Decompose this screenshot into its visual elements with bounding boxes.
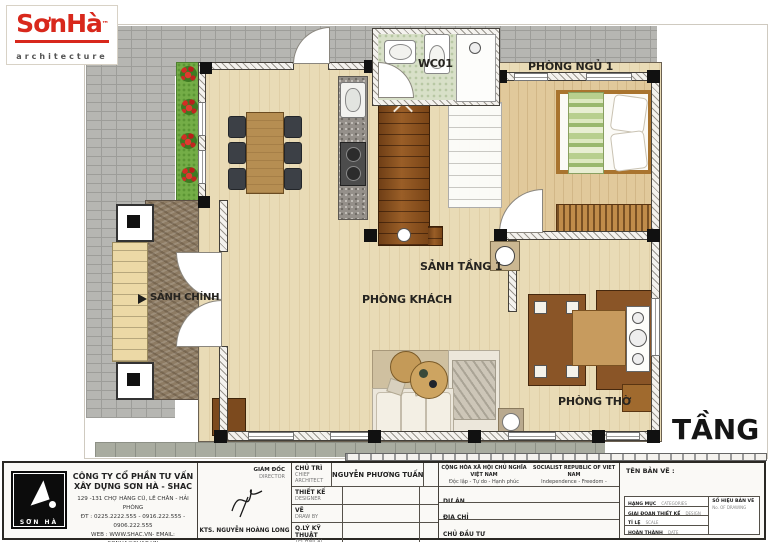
brand-logo: SơnHà™ architecture (6, 5, 118, 65)
floor-plan-page: WC01 PHÒNG NGỦ 1 SẢNH TẦNG 1 PHÒNG KHÁCH… (0, 0, 768, 542)
wall-entrance-lower (219, 346, 228, 441)
company-name-line1: CÔNG TY CỔ PHẦN TƯ VẤN (70, 472, 196, 482)
brand-name: SơnHà (16, 9, 102, 38)
flower-bush (181, 99, 198, 115)
dining-chair (284, 116, 302, 138)
info-row: ĐỊA CHỈ LOCATION (439, 503, 619, 519)
label-bedroom: PHÒNG NGỦ 1 (528, 60, 613, 73)
drawing-section: TÊN BẢN VẼ : HẠNG MỤC CATEGORIES GIAI ĐO… (620, 463, 764, 538)
director-section: GIÁM ĐỐC DIRECTOR KTS. NGUYỄN HOÀNG LONG (198, 463, 292, 538)
company-phone: ĐT : 0225.2222.555 - 0916.222.555 - 0906… (70, 513, 196, 531)
republic-section: CỘNG HÒA XÃ HỘI CHỦ NGHĨA VIỆT NAM Độc l… (439, 463, 620, 538)
kitchen-stove (340, 142, 366, 186)
drawing-meta-row: HẠNG MỤC CATEGORIES (625, 497, 708, 507)
sofa-blanket (452, 360, 496, 420)
column (198, 196, 210, 208)
role-label: THIẾT KẾ (295, 489, 339, 496)
company-section: SƠN HÀ CÔNG TY CỔ PHẦN TƯ VẤN XÂY DỰNG S… (4, 463, 198, 538)
drawing-meta-row: HOÀN THÀNH DATE (625, 526, 708, 535)
window (508, 432, 556, 440)
drawing-meta-row: TỈ LỆ SCALE (625, 516, 708, 526)
drawing-meta-row: GIAI ĐOẠN THIẾT KẾ DESIGN PHASE (625, 507, 708, 517)
column (200, 62, 212, 74)
pier-core (127, 373, 140, 386)
porch-pier (116, 362, 154, 400)
burner (346, 166, 361, 181)
burner (346, 147, 361, 162)
window (330, 432, 370, 440)
console-dish (629, 329, 647, 347)
director-label: GIÁM ĐỐC DIRECTOR (253, 467, 285, 480)
role-label: CHỦ TRÌ (295, 465, 328, 472)
dining-table (246, 112, 284, 194)
floor-title: TẦNG 1 (672, 413, 768, 446)
bed-pillow (610, 94, 649, 134)
company-address: 129 -131 CHỢ HÀNG CŨ, LÊ CHÂN - HẢI PHÒN… (70, 495, 196, 513)
scale-bar (345, 453, 767, 461)
console-dish (632, 312, 644, 324)
wall-top-left (198, 62, 294, 70)
drawing-meta-grid: HẠNG MỤC CATEGORIES GIAI ĐOẠN THIẾT KẾ D… (624, 496, 760, 535)
porch-pier (116, 204, 154, 242)
dining-chair (228, 142, 246, 164)
label-wc: WC01 (418, 57, 453, 70)
window (651, 298, 660, 356)
director-label-vn: GIÁM ĐỐC (253, 467, 285, 474)
console-dish (632, 353, 644, 365)
column (468, 430, 481, 443)
staircase (378, 100, 430, 246)
republic-vn2: Độc lập - Tự do - Hạnh phúc (439, 479, 529, 486)
altar-chair (534, 365, 547, 378)
lamp-shade (502, 413, 520, 431)
drawing-name-label: TÊN BẢN VẼ : (626, 467, 675, 475)
brand-tm: ™ (102, 20, 108, 28)
bed-blanket (568, 92, 604, 174)
console-cabinet (626, 306, 650, 372)
stair-start-marker (397, 228, 411, 242)
table-decor (429, 380, 437, 388)
republic-en2: Independence - Freedom - Happiness (529, 479, 619, 486)
role-row: CHỦ TRÌ CHIEF ARCHITECT NGUYỄN PHƯƠNG TU… (292, 463, 438, 487)
column (647, 430, 660, 443)
window (514, 73, 548, 81)
table-decor (419, 369, 428, 378)
meta-sub: CATEGORIES (661, 501, 686, 506)
label-living: PHÒNG KHÁCH (362, 293, 452, 306)
wall-right (651, 72, 660, 442)
director-name: KTS. NGUYỄN HOÀNG LONG (198, 528, 291, 534)
dining-chair (284, 168, 302, 190)
shower-head (469, 42, 481, 54)
meta-sub: DATE (668, 530, 678, 535)
brand-logo-text: SơnHà™ (7, 9, 117, 39)
label-worship: PHÒNG THỜ (558, 395, 631, 408)
column (592, 430, 605, 443)
column (647, 70, 660, 83)
drawing-number-sub: No. OF DRAWING (712, 505, 756, 510)
brand-sub-text: architecture (16, 52, 107, 61)
stair-void-dashed (448, 102, 502, 208)
main-hall-arrow-icon (138, 294, 147, 304)
flower-bush (181, 167, 198, 183)
republic-vn1: CỘNG HÒA XÃ HỘI CHỦ NGHĨA VIỆT NAM (439, 465, 529, 479)
company-logo-text: SƠN HÀ (11, 519, 67, 526)
dining-chair (228, 168, 246, 190)
director-signature (224, 481, 268, 521)
info-label: CHỦ ĐẦU TƯ (443, 531, 485, 538)
wc-sink-basin (389, 44, 412, 60)
republic-header: CỘNG HÒA XÃ HỘI CHỦ NGHĨA VIỆT NAM Độc l… (439, 463, 619, 487)
info-row: DỰ ÁN PROJECT (439, 487, 619, 503)
window (606, 432, 640, 440)
director-label-en: DIRECTOR (253, 474, 285, 480)
meta-label: HOÀN THÀNH (628, 531, 663, 535)
role-label: Q.LÝ KỸ THUẬT (295, 525, 339, 539)
bed-pillow (610, 130, 648, 172)
wc-sink (384, 40, 416, 64)
window (248, 432, 294, 440)
role-row: VẼ DRAW BY (292, 505, 438, 523)
sink-basin (345, 88, 361, 112)
window (198, 150, 206, 184)
flower-bush (180, 133, 197, 149)
role-sub: DRAW BY (295, 514, 339, 520)
company-web: WEB : WWW.SHAC.VN- EMAIL: SONHA@SHAC.VN (70, 531, 196, 542)
meta-sub: SCALE (646, 520, 659, 525)
column (368, 430, 381, 443)
altar-table-center (572, 310, 626, 366)
label-main-hall: SẢNH CHÍNH (150, 292, 219, 303)
role-value: NGUYỄN PHƯƠNG TUẤN (332, 471, 423, 479)
dining-chair (284, 142, 302, 164)
roles-section: CHỦ TRÌ CHIEF ARCHITECT NGUYỄN PHƯƠNG TU… (292, 463, 439, 538)
company-info: CÔNG TY CỔ PHẦN TƯ VẤN XÂY DỰNG SƠN HÀ -… (70, 472, 196, 542)
label-floor-hall: SẢNH TẦNG 1 (420, 260, 502, 273)
column (214, 430, 227, 443)
pier-core (127, 215, 140, 228)
role-sub: CHIEF ARCHITECT (295, 472, 328, 484)
flower-bush (180, 66, 197, 82)
role-row: THIẾT KẾ DESIGNER (292, 487, 438, 505)
altar-chair (534, 301, 547, 314)
wall-entrance-upper (219, 200, 228, 252)
wardrobe (556, 204, 652, 234)
dining-chair (228, 116, 246, 138)
altar-chair (566, 365, 579, 378)
company-logo-dot (49, 501, 56, 508)
brand-sub-bar: architecture (15, 40, 109, 63)
window (586, 73, 632, 81)
role-row: Q.LÝ KỸ THUẬT TECHNICAL MANAGER (292, 523, 438, 542)
coffee-table (410, 361, 448, 399)
info-row: CHỦ ĐẦU TƯ INVESTOR (439, 520, 619, 538)
role-label: VẼ (295, 507, 339, 514)
staircase-foot (428, 226, 443, 246)
company-name-line2: XÂY DỰNG SƠN HÀ - SHAC (70, 482, 196, 492)
company-logo: SƠN HÀ (11, 471, 67, 529)
republic-en1: SOCIALIST REPUBLIC OF VIET NAM (529, 465, 619, 479)
window (198, 102, 206, 136)
role-sub: DESIGNER (295, 496, 339, 502)
title-block: SƠN HÀ CÔNG TY CỔ PHẦN TƯ VẤN XÂY DỰNG S… (2, 461, 766, 540)
column (364, 229, 377, 242)
kitchen-sink (340, 82, 366, 118)
column (647, 229, 660, 242)
